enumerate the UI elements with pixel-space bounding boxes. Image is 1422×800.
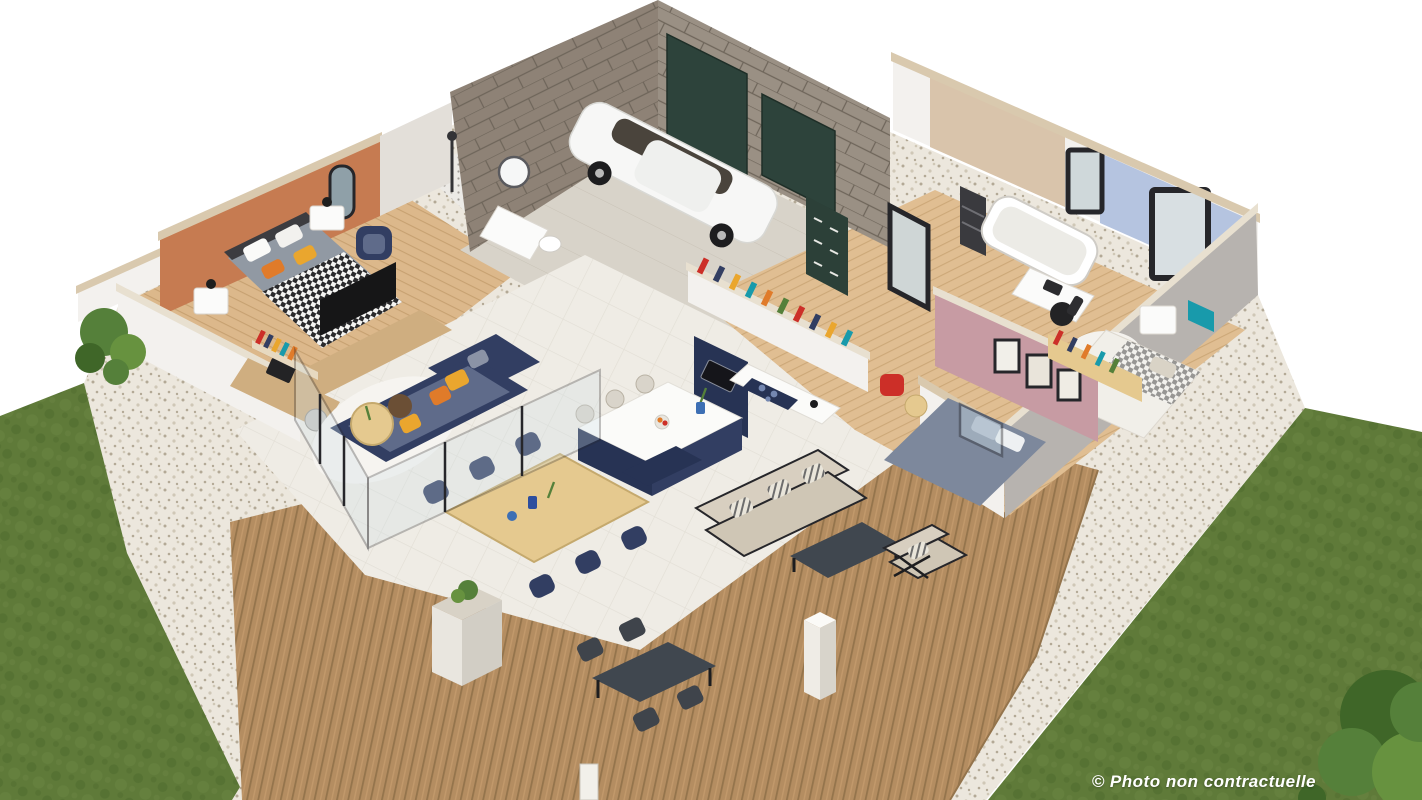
bathroom-window bbox=[1068, 150, 1102, 212]
planter-front bbox=[432, 606, 462, 686]
island-stool bbox=[606, 390, 624, 408]
column-front bbox=[804, 620, 820, 700]
cooktop-burner bbox=[765, 396, 770, 401]
cooktop-burner bbox=[759, 385, 766, 392]
shower-head bbox=[447, 131, 457, 141]
lamp-left bbox=[206, 279, 216, 289]
nightstand-left bbox=[194, 288, 228, 314]
floorplan-svg bbox=[0, 0, 1422, 800]
coffee-table-dark bbox=[388, 394, 412, 418]
picture-frame bbox=[995, 340, 1019, 372]
floorplan-render: © Photo non contractuelle bbox=[0, 0, 1422, 800]
caption: © Photo non contractuelle bbox=[1092, 772, 1316, 792]
radiator bbox=[960, 186, 986, 256]
deck-bollard-light bbox=[580, 764, 598, 800]
nightstand-right bbox=[310, 206, 344, 230]
planter-plant bbox=[451, 589, 465, 603]
side-table bbox=[905, 395, 927, 417]
deck-column bbox=[804, 612, 836, 700]
kitchen-faucet bbox=[810, 400, 818, 408]
table-vase-blue bbox=[528, 496, 537, 509]
picture-frame bbox=[1027, 355, 1051, 387]
bush-foliage bbox=[103, 359, 129, 385]
flower-vase bbox=[696, 402, 705, 414]
cooktop-burner bbox=[771, 391, 778, 398]
entry-door bbox=[890, 206, 928, 308]
fruit bbox=[657, 417, 662, 422]
toilet bbox=[539, 236, 561, 252]
bush-foliage bbox=[75, 343, 105, 373]
round-mirror bbox=[499, 157, 529, 187]
picture-frame bbox=[1058, 370, 1080, 400]
lamp-right bbox=[322, 197, 332, 207]
column-side bbox=[820, 620, 836, 700]
fruit bbox=[662, 420, 667, 425]
island-stool bbox=[636, 375, 654, 393]
coffee-table-wood bbox=[351, 403, 393, 445]
table-bowl bbox=[507, 511, 517, 521]
red-chair bbox=[880, 374, 904, 396]
blue-nightstand bbox=[1140, 306, 1176, 334]
navy-armchair-seat bbox=[363, 234, 385, 254]
